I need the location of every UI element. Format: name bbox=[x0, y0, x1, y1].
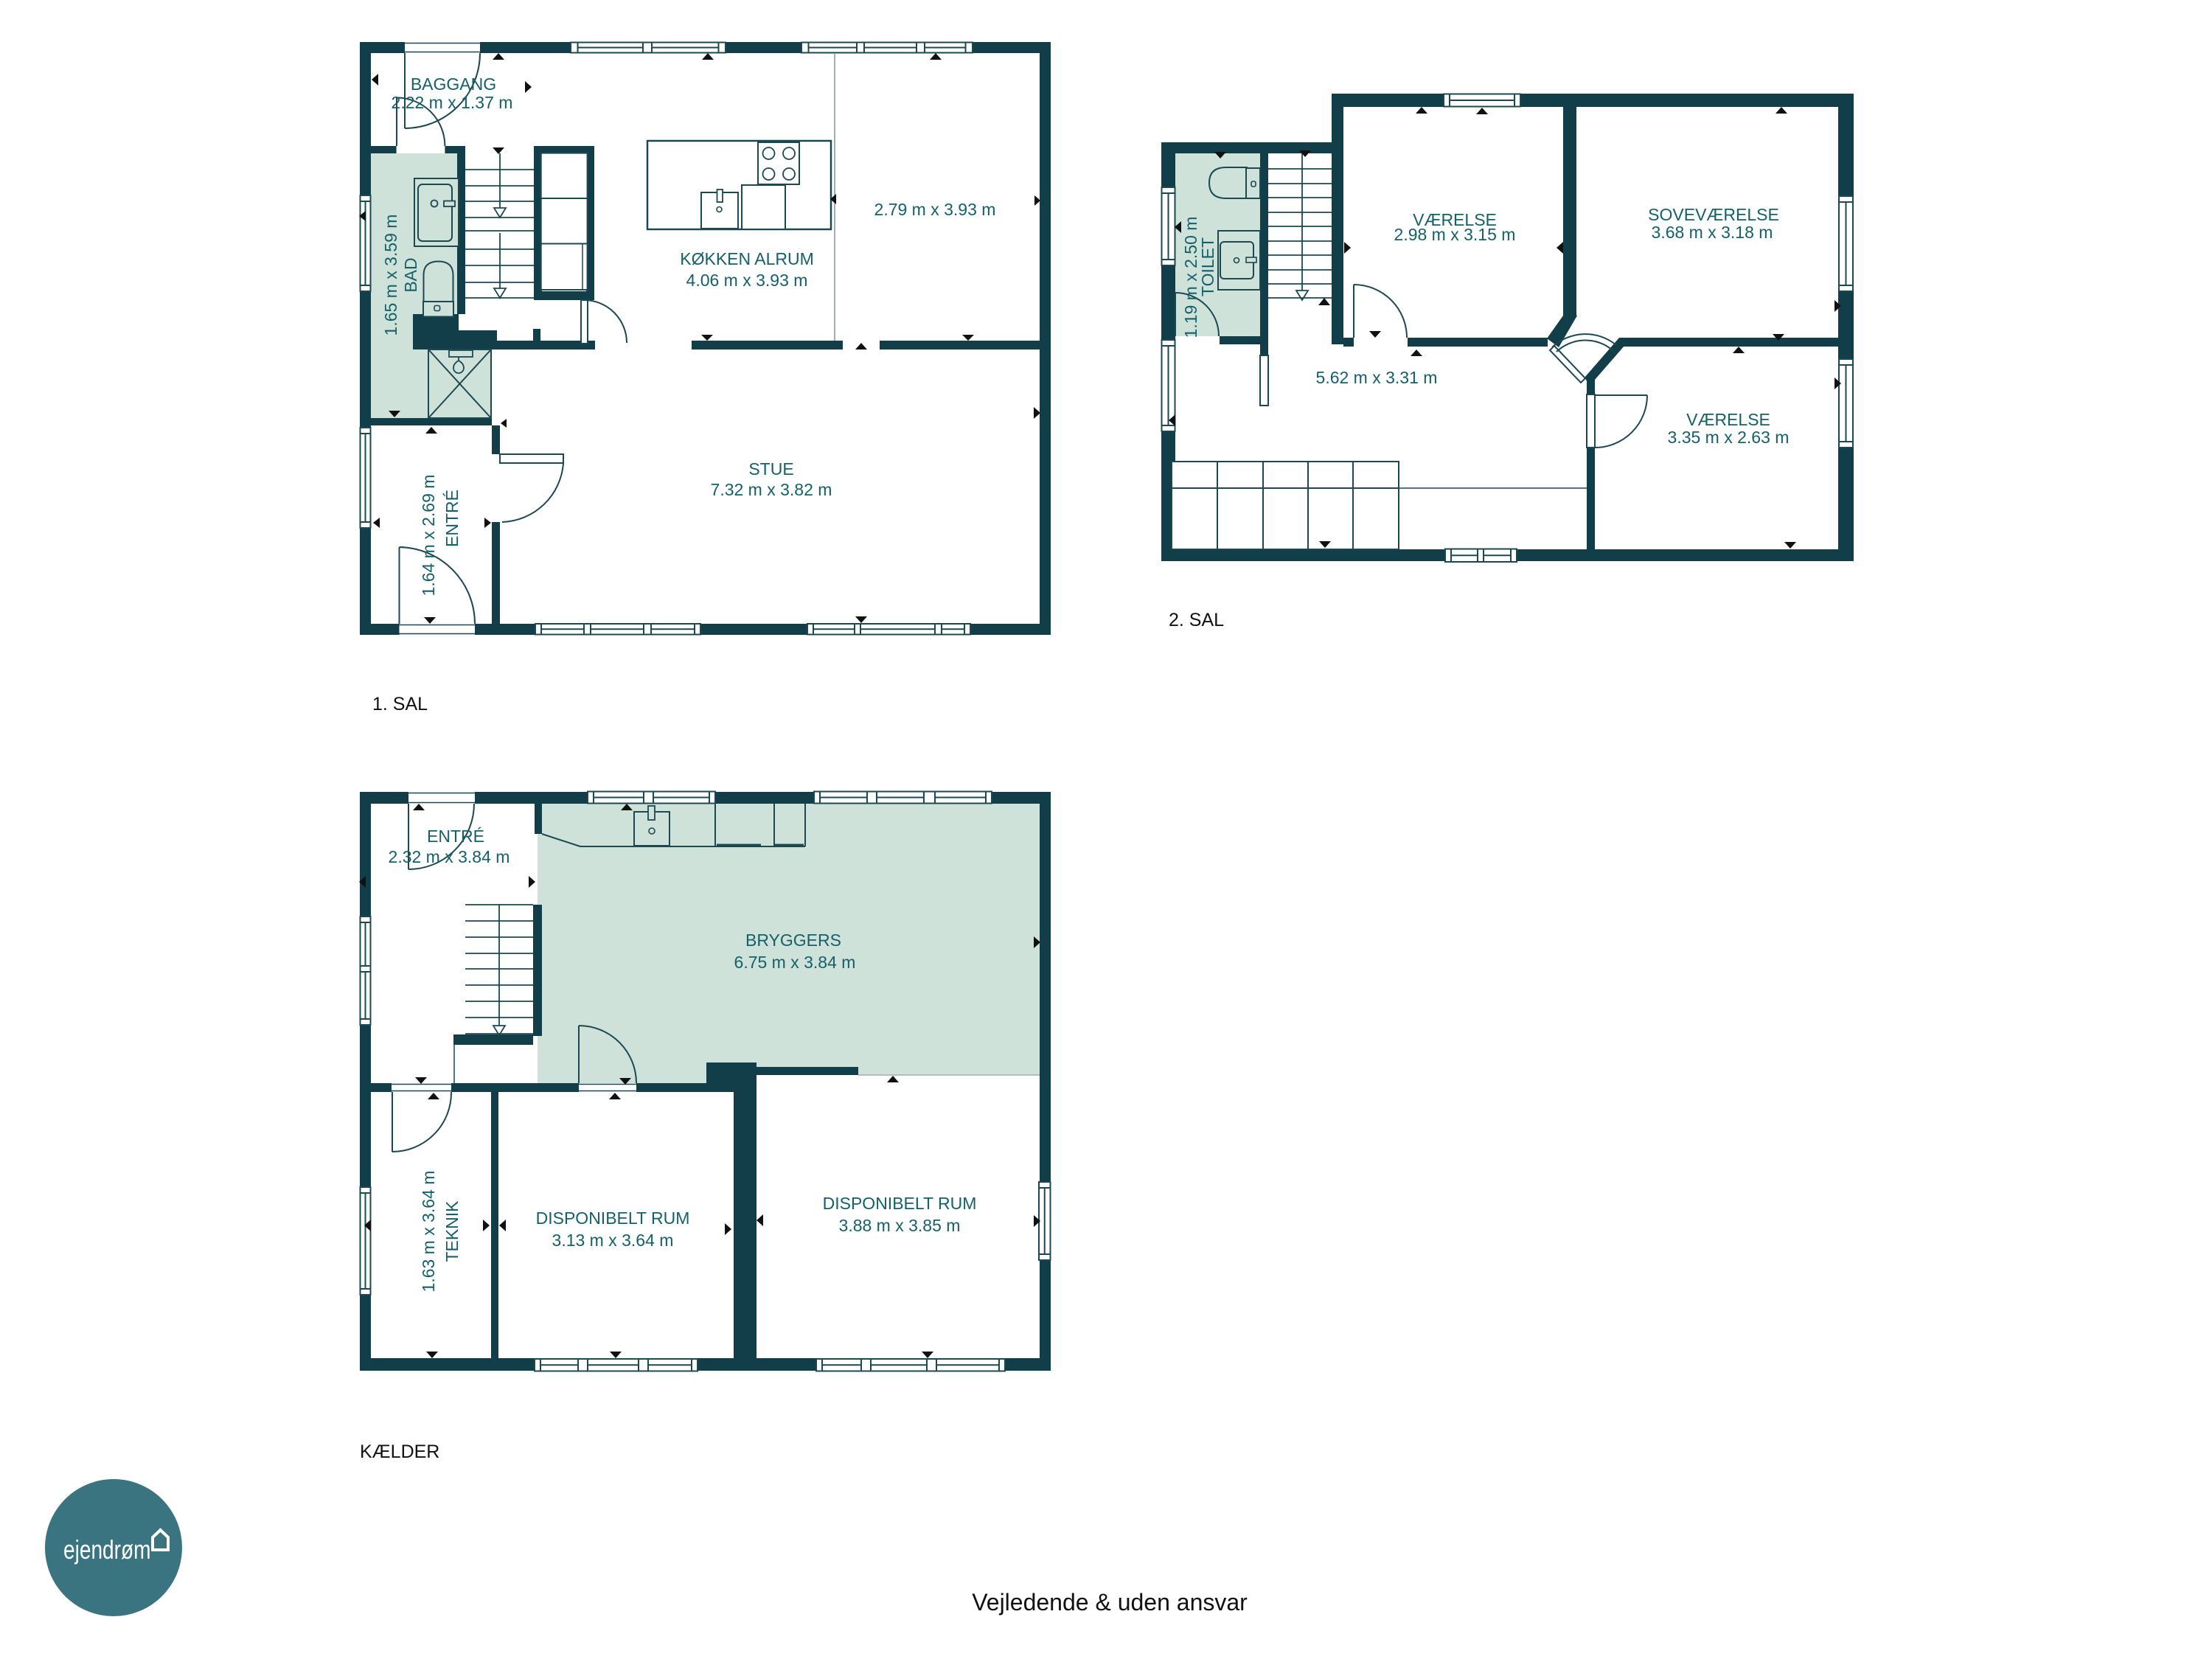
svg-text:5.62 m x 3.31 m: 5.62 m x 3.31 m bbox=[1316, 368, 1438, 387]
svg-text:ejendrøm: ejendrøm bbox=[63, 1535, 151, 1565]
svg-text:Vejledende & uden ansvar: Vejledende & uden ansvar bbox=[972, 1589, 1248, 1615]
svg-text:4.06 m x 3.93 m: 4.06 m x 3.93 m bbox=[686, 271, 808, 290]
svg-text:2.22 m x 1.37 m: 2.22 m x 1.37 m bbox=[392, 93, 513, 112]
svg-text:TEKNIK: TEKNIK bbox=[442, 1200, 462, 1262]
svg-text:2.98 m x 3.15 m: 2.98 m x 3.15 m bbox=[1394, 225, 1516, 244]
svg-text:DISPONIBELT RUM: DISPONIBELT RUM bbox=[536, 1208, 690, 1228]
svg-text:ENTRÉ: ENTRÉ bbox=[427, 827, 484, 846]
svg-text:BAGGANG: BAGGANG bbox=[411, 74, 496, 94]
svg-text:DISPONIBELT RUM: DISPONIBELT RUM bbox=[823, 1194, 977, 1213]
svg-text:1.65 m x 3.59 m: 1.65 m x 3.59 m bbox=[381, 215, 400, 336]
svg-text:STUE: STUE bbox=[748, 459, 793, 479]
svg-text:2. SAL: 2. SAL bbox=[1169, 610, 1224, 630]
svg-text:1.63 m x 3.64 m: 1.63 m x 3.64 m bbox=[419, 1171, 438, 1293]
svg-text:1.64 m x 2.69 m: 1.64 m x 2.69 m bbox=[419, 475, 438, 597]
svg-text:6.75 m x 3.84 m: 6.75 m x 3.84 m bbox=[734, 953, 856, 972]
svg-text:1.19 m x 2.50 m: 1.19 m x 2.50 m bbox=[1181, 217, 1200, 338]
svg-text:VÆRELSE: VÆRELSE bbox=[1686, 410, 1770, 429]
svg-text:BAD: BAD bbox=[401, 257, 420, 292]
svg-text:KÆLDER: KÆLDER bbox=[360, 1441, 439, 1462]
svg-text:ENTRÉ: ENTRÉ bbox=[442, 490, 462, 547]
svg-text:7.32 m x 3.82 m: 7.32 m x 3.82 m bbox=[711, 480, 832, 499]
svg-text:3.88 m x 3.85 m: 3.88 m x 3.85 m bbox=[839, 1216, 961, 1235]
svg-text:3.35 m x 2.63 m: 3.35 m x 2.63 m bbox=[1668, 428, 1790, 447]
svg-text:2.79 m x 3.93 m: 2.79 m x 3.93 m bbox=[874, 200, 996, 219]
svg-text:2.32 m x 3.84 m: 2.32 m x 3.84 m bbox=[389, 847, 510, 866]
svg-text:SOVEVÆRELSE: SOVEVÆRELSE bbox=[1648, 205, 1779, 224]
svg-text:1. SAL: 1. SAL bbox=[372, 694, 428, 714]
svg-text:TOILET: TOILET bbox=[1198, 237, 1217, 296]
svg-text:BRYGGERS: BRYGGERS bbox=[745, 931, 841, 950]
svg-text:3.68 m x 3.18 m: 3.68 m x 3.18 m bbox=[1652, 223, 1773, 242]
svg-text:KØKKEN ALRUM: KØKKEN ALRUM bbox=[680, 249, 814, 268]
svg-text:3.13 m x 3.64 m: 3.13 m x 3.64 m bbox=[552, 1231, 674, 1250]
